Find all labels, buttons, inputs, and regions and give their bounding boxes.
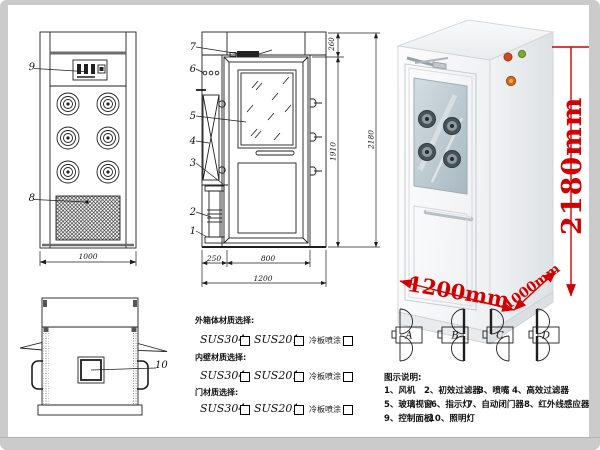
section-part-label-4: 4 — [183, 136, 196, 147]
material-door-sus201: SUS201 — [254, 402, 299, 415]
front-part-label-8: 8 — [23, 193, 35, 204]
door-type-d-label: D — [541, 331, 550, 342]
legend-item-7: 7、自动闭门器 — [467, 398, 524, 410]
section-part-label-5: 5 — [183, 111, 196, 122]
material-outer-title: 外箱体材质选择: — [195, 315, 254, 326]
material-door-sus201-checkbox[interactable] — [294, 405, 304, 415]
section-part-label-7: 7 — [183, 42, 196, 53]
legend-title: 图示说明: — [384, 371, 421, 383]
legend-item-3: 3、喷嘴 — [478, 384, 509, 396]
material-door-sus304: SUS304 — [200, 402, 245, 415]
section-dim-left: 250 — [200, 254, 228, 263]
section-part-label-6: 6 — [183, 64, 196, 75]
material-inner-coldplate-checkbox[interactable] — [343, 372, 353, 382]
material-outer-coldplate-checkbox[interactable] — [343, 336, 353, 346]
front-part-label-9: 9 — [23, 62, 35, 73]
frame-border-right — [589, 0, 600, 450]
frame-border-left — [0, 0, 8, 450]
air-shower-spec-sheet: A B C D 9 8 1000 7 6 — [0, 0, 600, 450]
legend-item-5: 5、玻璃视窗 — [384, 398, 432, 410]
material-outer-coldplate: 冷板喷涂 — [309, 335, 341, 346]
material-door-coldplate: 冷板喷涂 — [309, 404, 341, 415]
material-outer-sus304-checkbox[interactable] — [240, 336, 250, 346]
top-view-drawing — [20, 298, 167, 415]
legend-item-4: 4、高效过滤器 — [512, 384, 569, 396]
legend-item-2: 2、初效过滤器 — [424, 384, 481, 396]
nozzle-grid — [57, 93, 119, 183]
wall-nozzles — [310, 99, 322, 175]
technical-drawing-canvas: A B C D — [0, 0, 600, 450]
material-inner-sus304: SUS304 — [200, 369, 245, 382]
material-inner-coldplate: 冷板喷涂 — [309, 371, 341, 382]
legend-item-9: 9、控制面板 — [384, 412, 432, 424]
door-type-c-label: C — [496, 331, 504, 342]
legend-item-10: 10、照明灯 — [429, 412, 475, 424]
door-handle — [256, 151, 294, 155]
glass-window — [238, 70, 296, 148]
leader-lines — [196, 47, 246, 237]
material-door-coldplate-checkbox[interactable] — [343, 405, 353, 415]
door-type-b-label: B — [450, 331, 458, 342]
frame-border-top — [0, 0, 600, 5]
indicator-lights — [203, 71, 219, 75]
photo-glass-window — [414, 78, 467, 194]
material-outer-sus304: SUS304 — [200, 333, 245, 346]
door-type-a-label: A — [404, 331, 412, 342]
material-inner-sus304-checkbox[interactable] — [240, 372, 250, 382]
section-dim-door-width: 800 — [246, 254, 290, 263]
section-dim-top: 260 — [328, 29, 336, 59]
front-view-drawing — [34, 32, 136, 266]
material-door-sus304-checkbox[interactable] — [240, 405, 250, 415]
door-type-d-icon[interactable]: D — [529, 309, 559, 361]
legend-item-1: 1、风机 — [384, 384, 415, 396]
material-inner-sus201-checkbox[interactable] — [294, 372, 304, 382]
material-door-title: 门材质选择: — [195, 387, 238, 398]
material-outer-sus201-checkbox[interactable] — [294, 336, 304, 346]
material-outer-sus201: SUS201 — [254, 333, 299, 346]
legend-item-8: 8、红外线感应器 — [524, 398, 589, 410]
section-part-label-3: 3 — [183, 158, 196, 169]
section-dim-total-width: 1200 — [239, 274, 287, 283]
front-dim-width: 1000 — [68, 252, 108, 261]
material-inner-title: 内壁材质选择: — [195, 352, 246, 363]
material-inner-sus201: SUS201 — [254, 369, 299, 382]
section-part-label-1: 1 — [183, 226, 196, 237]
section-part-label-2: 2 — [183, 207, 196, 218]
control-panel — [73, 60, 107, 80]
section-view-drawing — [196, 32, 380, 287]
section-dim-door-height: 1910 — [329, 137, 338, 167]
legend-item-6: 6、指示灯 — [431, 398, 471, 410]
section-dim-total-height: 2180 — [367, 125, 376, 155]
top-view-label-10: 10 — [155, 360, 171, 371]
photo-dim-height: 2180mm — [557, 105, 587, 235]
frame-border-bottom — [0, 437, 600, 450]
